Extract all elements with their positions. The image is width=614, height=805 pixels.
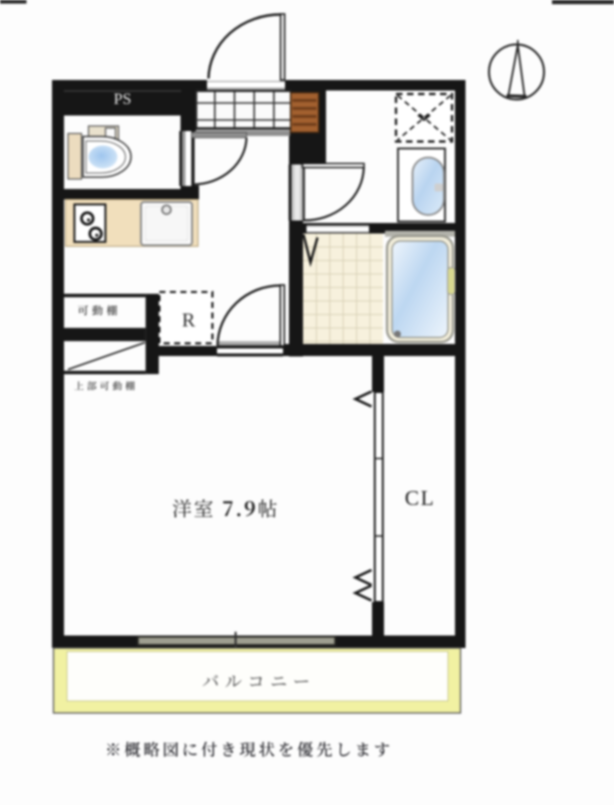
svg-text:CL: CL xyxy=(405,486,435,510)
svg-text:PS: PS xyxy=(114,91,132,108)
svg-text:R: R xyxy=(182,310,196,332)
